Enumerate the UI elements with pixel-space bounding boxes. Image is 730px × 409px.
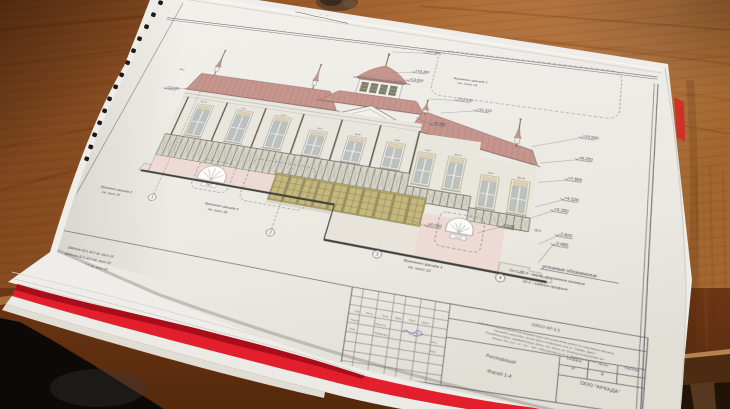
svg-text:+7.655: +7.655 (568, 176, 583, 183)
svg-text:Ресторация: Ресторация (485, 352, 517, 366)
svg-text:№док: №док (394, 316, 402, 322)
svg-text:Ш-2: Ш-2 (179, 69, 185, 72)
svg-text:+10.500: +10.500 (582, 134, 599, 141)
svg-text:Р: Р (571, 365, 575, 372)
svg-text:+13.000: +13.000 (166, 85, 181, 91)
svg-text:Ш-1: Ш-1 (534, 230, 542, 234)
svg-text:+12.100: +12.100 (458, 97, 474, 103)
svg-text:Листов: Листов (622, 366, 641, 374)
svg-text:+11.310: +11.310 (477, 107, 493, 113)
svg-text:-2.460: -2.460 (554, 240, 569, 248)
svg-text:+4.326: +4.326 (564, 196, 580, 203)
svg-text:+3.250: +3.250 (554, 207, 570, 215)
svg-text:+13.500: +13.500 (409, 77, 425, 83)
svg-text:+16.350: +16.350 (415, 69, 431, 75)
svg-text:-2.600: -2.600 (558, 231, 573, 239)
svg-text:Пров.: Пров. (349, 328, 357, 333)
svg-text:Подп: Подп (408, 318, 415, 324)
svg-text:+8.250: +8.250 (579, 156, 594, 163)
svg-text:Фасад 1-4: Фасад 1-4 (487, 367, 513, 379)
svg-text:+17.060: +17.060 (426, 50, 441, 55)
svg-text:Голубев В.И.: Голубев В.И. (373, 332, 390, 339)
